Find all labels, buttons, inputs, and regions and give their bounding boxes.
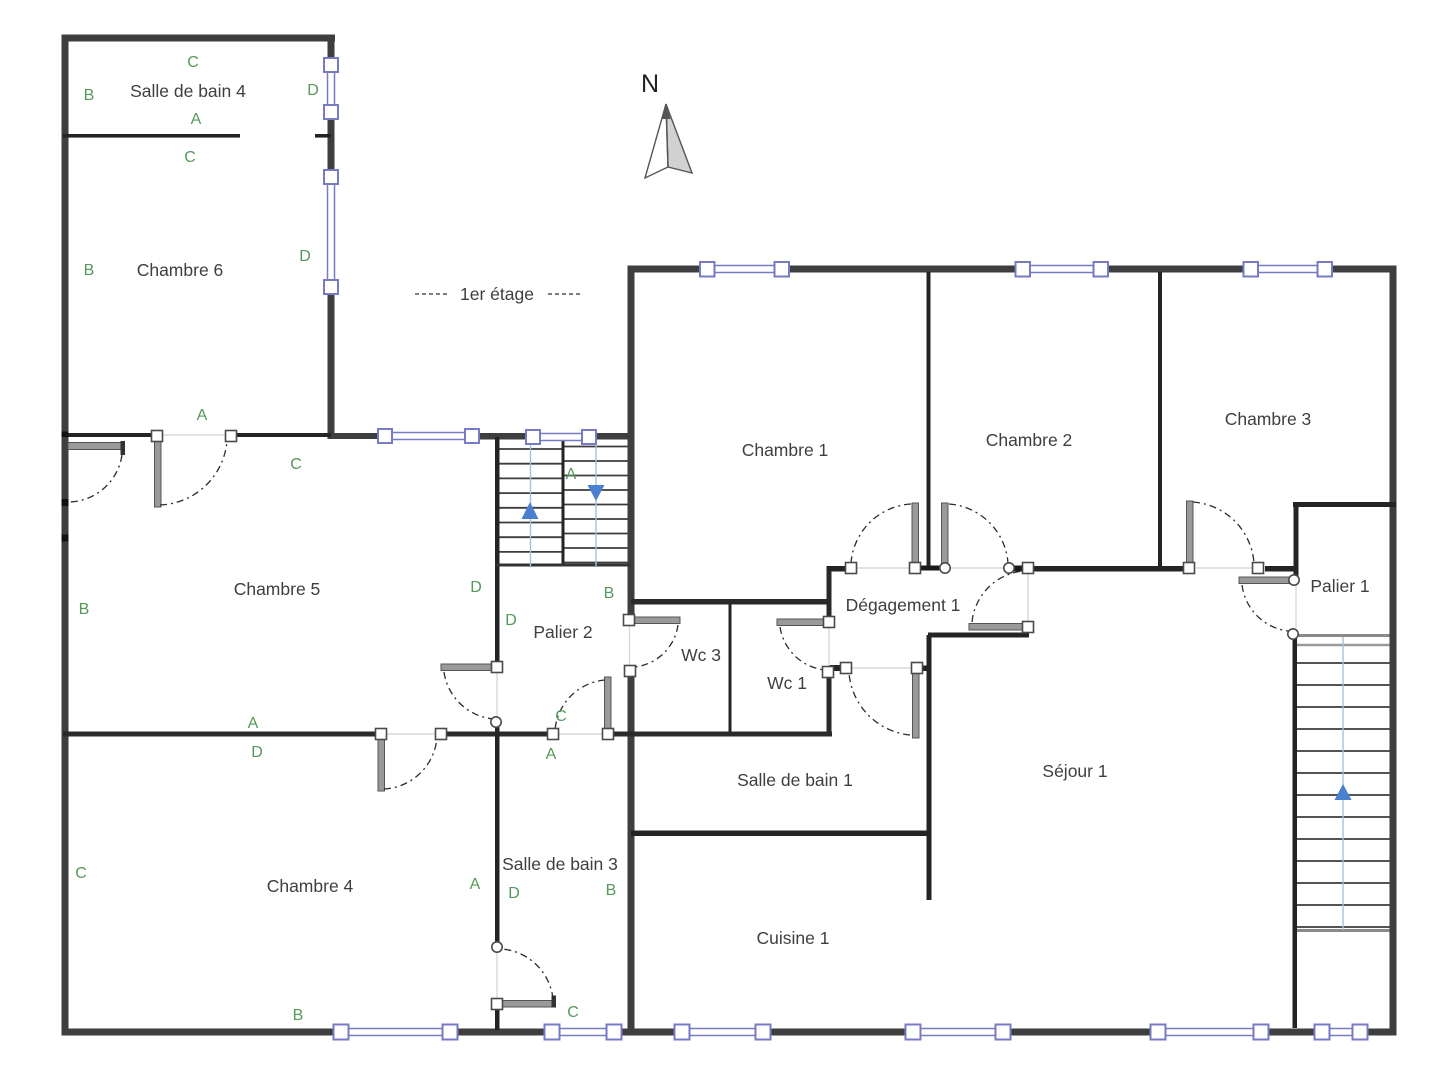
svg-text:Salle de bain 4: Salle de bain 4 [130,81,246,101]
svg-text:D: D [470,579,482,596]
svg-text:B: B [84,262,95,279]
svg-text:C: C [555,708,567,725]
svg-text:D: D [508,885,520,902]
svg-text:Chambre 3: Chambre 3 [1225,409,1312,429]
svg-text:A: A [470,876,481,893]
svg-text:D: D [251,744,263,761]
svg-text:A: A [566,466,577,483]
svg-text:C: C [75,865,87,882]
svg-text:Chambre 6: Chambre 6 [137,260,224,280]
svg-text:A: A [248,715,259,732]
svg-text:B: B [79,601,90,618]
svg-text:A: A [191,111,202,128]
svg-text:Chambre 2: Chambre 2 [986,430,1073,450]
svg-text:B: B [606,882,617,899]
svg-text:Dégagement 1: Dégagement 1 [846,595,961,615]
svg-text:Palier 2: Palier 2 [533,622,592,642]
svg-text:C: C [290,456,302,473]
svg-text:B: B [293,1007,304,1024]
svg-text:Chambre 4: Chambre 4 [267,876,354,896]
svg-text:Salle de bain 3: Salle de bain 3 [502,854,618,874]
svg-text:1er étage: 1er étage [460,284,534,304]
svg-text:Palier 1: Palier 1 [1310,576,1369,596]
svg-text:N: N [641,70,659,98]
svg-text:Chambre 5: Chambre 5 [234,579,321,599]
svg-text:Salle de bain 1: Salle de bain 1 [737,770,853,790]
svg-text:Wc 3: Wc 3 [681,645,721,665]
svg-text:C: C [184,149,196,166]
svg-text:A: A [546,746,557,763]
svg-text:Wc 1: Wc 1 [767,673,807,693]
svg-text:Cuisine 1: Cuisine 1 [757,928,830,948]
svg-text:B: B [84,87,95,104]
svg-text:Séjour 1: Séjour 1 [1042,761,1107,781]
svg-text:D: D [307,82,319,99]
svg-text:Chambre 1: Chambre 1 [742,440,829,460]
svg-text:D: D [299,248,311,265]
svg-text:A: A [197,407,208,424]
svg-text:B: B [604,585,615,602]
svg-text:C: C [567,1004,579,1021]
svg-text:D: D [505,612,517,629]
svg-text:C: C [187,54,199,71]
